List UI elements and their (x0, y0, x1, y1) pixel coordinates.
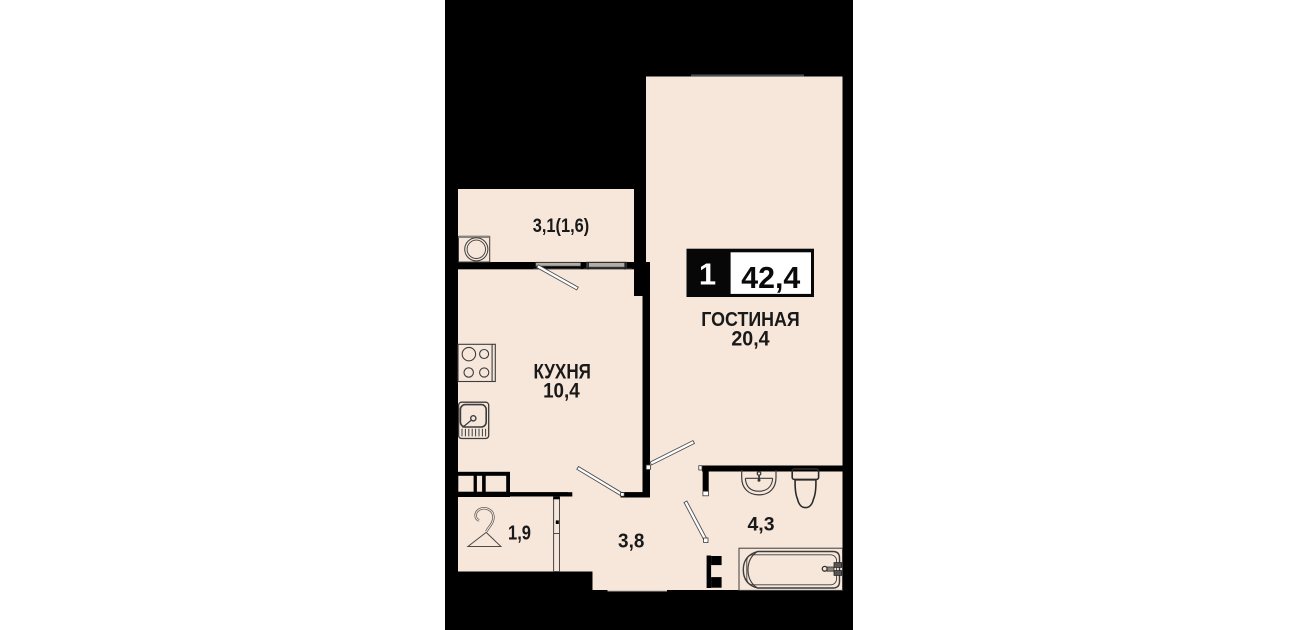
svg-text:1: 1 (699, 256, 716, 291)
svg-text:1,9: 1,9 (508, 523, 531, 545)
svg-text:4,3: 4,3 (748, 515, 775, 536)
svg-text:3,1(1,6): 3,1(1,6) (533, 216, 590, 237)
svg-text:42,4: 42,4 (741, 260, 801, 295)
svg-text:3,8: 3,8 (618, 530, 644, 552)
svg-text:20,4: 20,4 (731, 328, 769, 351)
svg-text:10,4: 10,4 (543, 379, 580, 402)
